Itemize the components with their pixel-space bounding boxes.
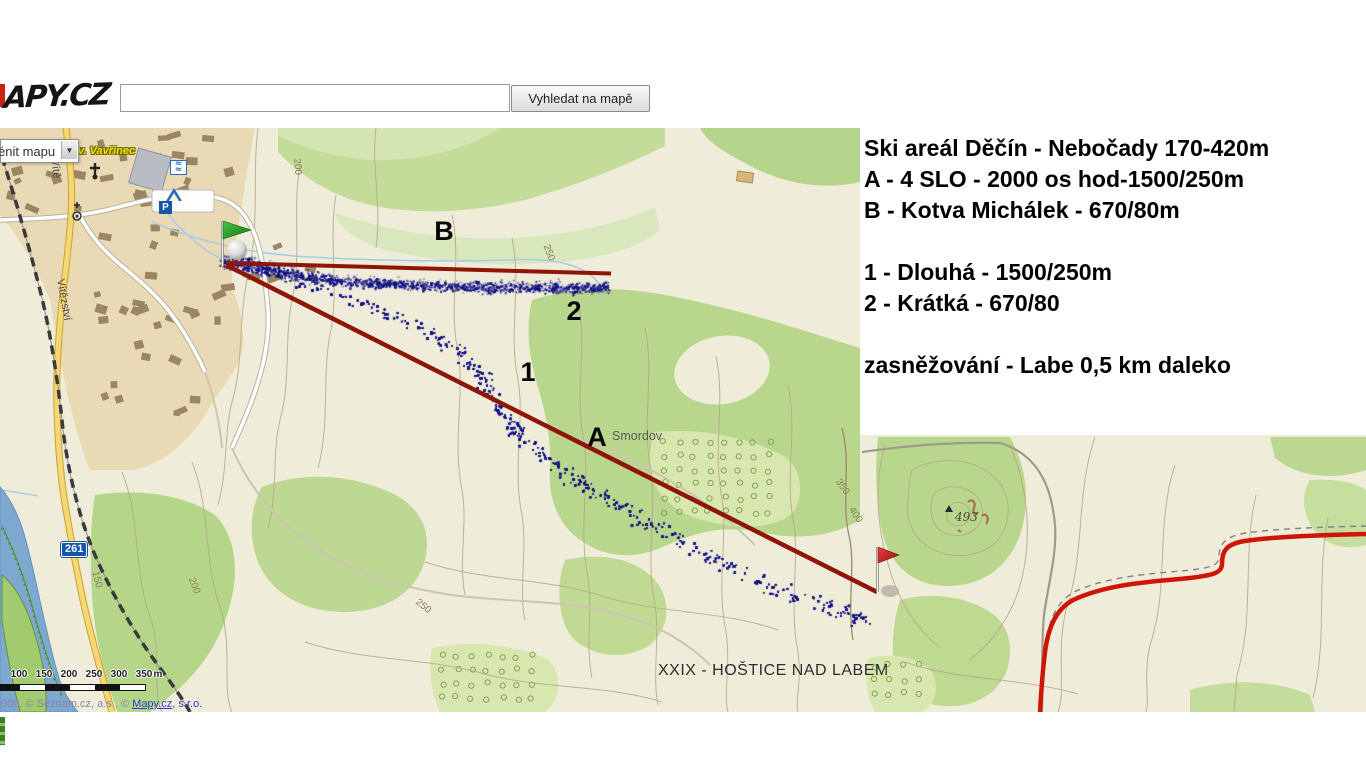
- ski-info-panel: Ski areál Děčín - Nebočady 170-420mA - 4…: [860, 128, 1366, 435]
- route-marker-1: 1: [520, 357, 535, 388]
- place-label: 493: [955, 510, 978, 524]
- scale-tick-label: 250: [86, 669, 103, 680]
- info-panel-line: B - Kotva Michálek - 670/80m: [864, 195, 1366, 226]
- scale-tick-label: 350: [136, 669, 153, 680]
- road-shield-261: 261: [61, 542, 87, 557]
- cropped-icon-fragment: [0, 717, 5, 745]
- mapy-cz-link[interactable]: Mapy.cz: [132, 698, 172, 710]
- place-label: XXIX - HOŠTICE NAD LABEM: [658, 662, 889, 680]
- route-marker-B: B: [434, 216, 454, 247]
- contour-label: 400: [846, 505, 865, 525]
- contour-label: 200: [291, 158, 303, 176]
- contour-label: 350: [833, 477, 852, 497]
- mapy-logo[interactable]: APY.CZ: [2, 77, 110, 116]
- attribution-suffix: , s.r.o.: [172, 698, 202, 710]
- place-label: v. Vavřinec: [78, 145, 135, 157]
- route-marker-2: 2: [566, 296, 581, 327]
- contour-label: 150: [89, 570, 104, 589]
- info-panel-line: 1 - Dlouhá - 1500/250m: [864, 257, 1366, 288]
- place-label: Vítězství: [54, 278, 73, 322]
- scale-tick-label: 150: [36, 669, 53, 680]
- scale-tick-label: 200: [61, 669, 78, 680]
- info-panel-line: 2 - Krátká - 670/80: [864, 288, 1366, 319]
- info-panel-line: [864, 319, 1366, 350]
- chevron-down-icon[interactable]: ▼: [61, 141, 77, 159]
- scale-tick-label: 100: [11, 669, 28, 680]
- info-panel-line: zasněžování - Labe 0,5 km daleko: [864, 350, 1366, 381]
- scale-unit: m: [154, 669, 163, 680]
- contour-label: 250: [413, 597, 433, 616]
- scale-bar-labels: 100150200250300350m: [0, 669, 170, 681]
- search-input[interactable]: [120, 84, 510, 112]
- scale-tick-label: 300: [111, 669, 128, 680]
- change-map-label: énit mapu: [0, 144, 55, 159]
- contour-label: 200: [186, 576, 202, 596]
- contour-label: 250: [541, 243, 557, 262]
- info-panel-line: Ski areál Děčín - Nebočady 170-420m: [864, 133, 1366, 164]
- water-sport-icon: ≈≈: [170, 160, 187, 175]
- campsite-icon: [166, 188, 182, 201]
- place-label: Smordov: [612, 429, 662, 443]
- route-marker-A: A: [587, 422, 607, 453]
- mapy-page: { "header": { "logo_text": "APY.CZ", "se…: [0, 0, 1366, 768]
- map-attribution: 000, © Seznam.cz, a.s., © Mapy.cz, s.r.o…: [1, 698, 202, 710]
- info-panel-line: A - 4 SLO - 2000 os hod-1500/250m: [864, 164, 1366, 195]
- change-map-dropdown[interactable]: énit mapu ▼: [0, 139, 79, 163]
- parking-icon: P: [159, 201, 172, 214]
- attribution-text: 000, © Seznam.cz, a.s., ©: [1, 698, 132, 710]
- search-map-button[interactable]: Vyhledat na mapě: [511, 85, 650, 112]
- info-panel-line: [864, 226, 1366, 257]
- scale-bar: [0, 684, 146, 691]
